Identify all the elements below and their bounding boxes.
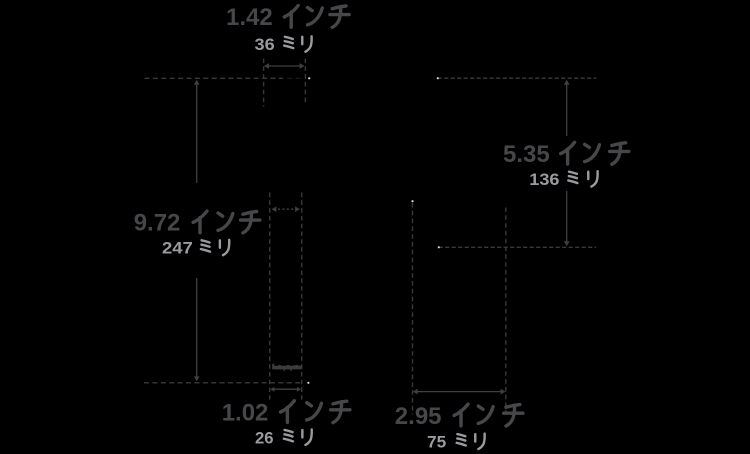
svg-text:1.02: 1.02: [222, 399, 269, 426]
svg-text:2.95: 2.95: [395, 403, 442, 430]
svg-text:9.72: 9.72: [134, 210, 181, 237]
svg-text:136: 136: [529, 170, 559, 189]
svg-text:26: 26: [255, 428, 274, 447]
svg-text:36: 36: [255, 35, 275, 54]
svg-text:1.42: 1.42: [226, 4, 273, 31]
svg-text:247: 247: [162, 239, 193, 258]
svg-text:75: 75: [427, 432, 446, 451]
svg-text:5.35: 5.35: [503, 141, 550, 168]
